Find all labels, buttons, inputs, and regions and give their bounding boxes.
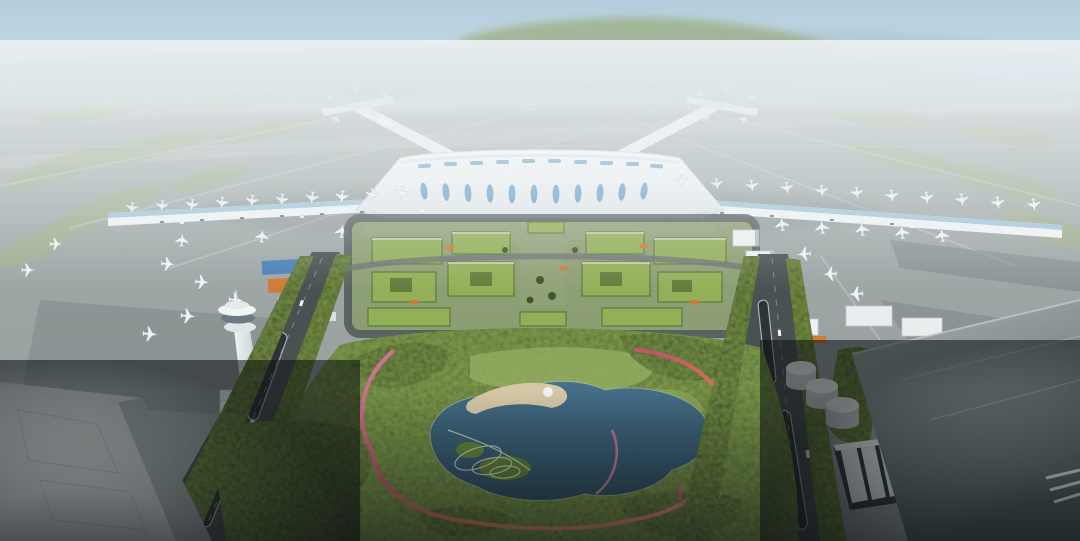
- airport-aerial-rendering: [0, 0, 1080, 541]
- atmospheric-haze: [0, 40, 1080, 290]
- scene-canvas: [0, 0, 1080, 541]
- tower-antenna: [236, 290, 237, 300]
